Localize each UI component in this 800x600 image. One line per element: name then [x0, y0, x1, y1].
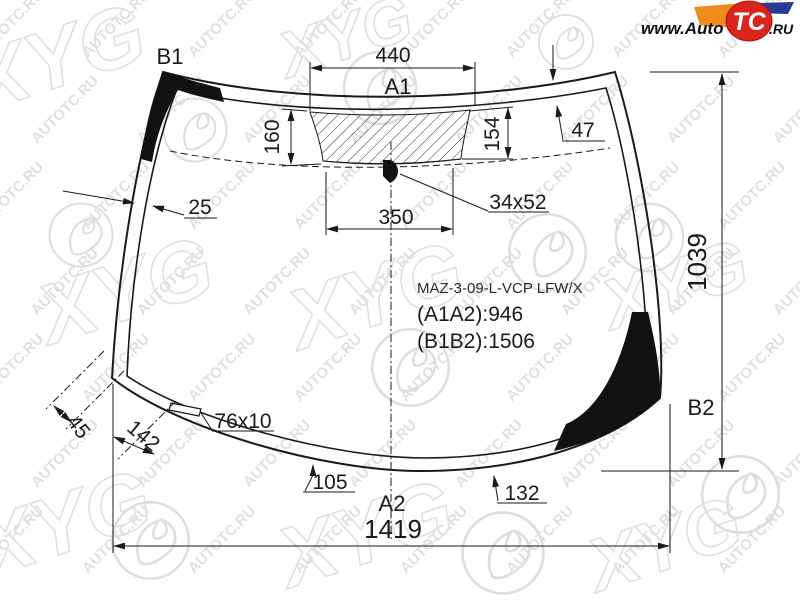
- windshield-drawing-page: AUTOTC.RUAUTOTC.RUAUTOTC.RUAUTOTC.RUAUTO…: [0, 0, 800, 600]
- autotc-watermark-text: AUTOTC.RU: [185, 331, 259, 405]
- spec-b1b2: (B1B2):1506: [417, 330, 535, 353]
- dimension-76x10: 76x10: [201, 410, 274, 433]
- autotc-watermark-text: AUTOTC.RU: [664, 417, 738, 491]
- dimension-132: 132: [494, 476, 547, 505]
- xyg-watermark: XYG: [0, 451, 162, 596]
- dim-105-label: 105: [312, 471, 347, 494]
- drawing-canvas: AUTOTC.RUAUTOTC.RUAUTOTC.RUAUTOTC.RUAUTO…: [0, 0, 800, 600]
- dim-132-label: 132: [504, 482, 539, 505]
- autotc-watermark-text: AUTOTC.RU: [558, 73, 632, 147]
- ceramic-band-b2: [554, 312, 660, 451]
- dim-47-label: 47: [571, 119, 594, 142]
- spec-a1a2: (A1A2):946: [417, 303, 523, 326]
- autotc-watermark-text: AUTOTC.RU: [664, 73, 738, 147]
- autotc-watermark-text: AUTOTC.RU: [770, 417, 800, 491]
- dim-160-label: 160: [261, 119, 284, 154]
- logo-ru-text: .RU: [769, 21, 794, 37]
- xyg-watermark: XYG: [589, 224, 758, 345]
- autotc-watermark-text: AUTOTC.RU: [0, 159, 47, 233]
- autotc-watermark-text: AUTOTC.RU: [185, 0, 259, 61]
- dim-350-label: 350: [378, 206, 413, 229]
- xyg-watermark: XYG: [23, 218, 225, 363]
- dim-34x52-label: 34x52: [489, 191, 546, 214]
- logo-tc-text: TC: [732, 8, 766, 36]
- dim-25-label: 25: [188, 196, 211, 219]
- label-a2: A2: [379, 491, 406, 516]
- autotc-watermark-text: AUTOTC.RU: [291, 159, 365, 233]
- autotc-watermark-text: AUTOTC.RU: [715, 331, 789, 405]
- autotc-watermark-text: AUTOTC.RU: [715, 159, 789, 233]
- dim-76x10-label: 76x10: [214, 410, 271, 433]
- part-code: MAZ-3-09-L-VCP LFW/X: [417, 280, 583, 297]
- autotc-watermark-text: AUTOTC.RU: [0, 331, 47, 405]
- dim-154-label: 154: [481, 116, 504, 151]
- label-b1: B1: [157, 44, 184, 69]
- autotc-watermark-text: AUTOTC.RU: [185, 503, 259, 577]
- dim-440-label: 440: [375, 44, 410, 67]
- label-b2: B2: [688, 395, 715, 420]
- dim-142-label: 142: [122, 416, 164, 456]
- label-a1: A1: [385, 74, 412, 99]
- xyg-watermark: XYG: [0, 0, 156, 130]
- autotc-watermark-text: AUTOTC.RU: [770, 245, 800, 319]
- dim-1419-label: 1419: [364, 514, 422, 544]
- autotc-watermark-text: AUTOTC.RU: [770, 73, 800, 147]
- logo-www-text: www.Auto: [641, 19, 723, 38]
- xyg-watermark: XYG: [573, 480, 751, 600]
- sensor-hatch-band: [310, 110, 470, 164]
- dim-1039-label: 1039: [682, 233, 712, 291]
- dimension-105: 105: [303, 465, 355, 494]
